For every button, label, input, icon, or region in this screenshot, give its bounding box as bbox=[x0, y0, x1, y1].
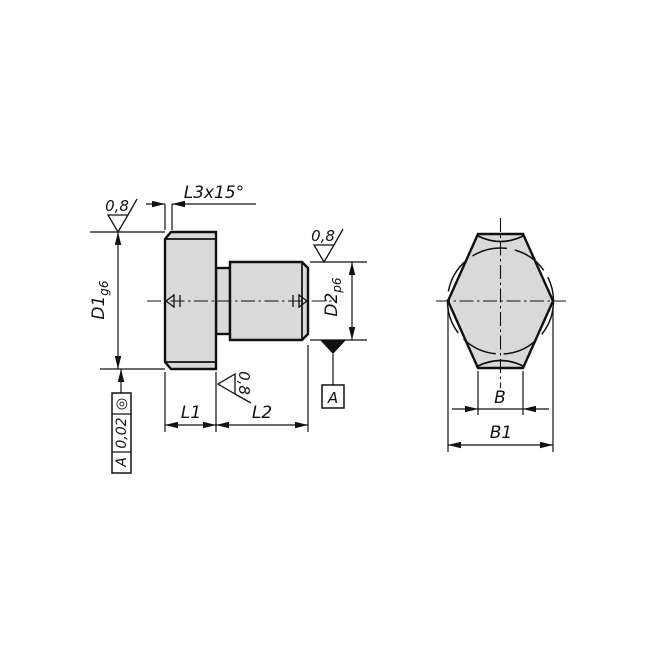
side-view bbox=[147, 232, 332, 369]
roughness-value: 0,8 bbox=[105, 197, 129, 215]
datum-feature-symbol: A bbox=[320, 340, 346, 408]
dim-l2-label: L2 bbox=[252, 403, 272, 423]
screw-drawing: D1g6 L3x15° D2p6 L1 L2 0,8 0,8 bbox=[0, 0, 654, 654]
datum-triangle-icon bbox=[320, 340, 346, 354]
roughness-symbol-head-top: 0,8 bbox=[105, 197, 137, 232]
roughness-symbol-shaft-top: 0,8 bbox=[311, 227, 343, 262]
roughness-symbol-head-face: 0,8 bbox=[218, 371, 253, 403]
dim-l3-label: L3x15° bbox=[184, 183, 244, 203]
tolerance-frame: ◎ 0,02 A bbox=[112, 369, 131, 473]
roughness-value: 0,8 bbox=[235, 371, 253, 395]
dim-b1-label: B1 bbox=[490, 423, 512, 443]
end-view: B B1 bbox=[436, 218, 566, 452]
roughness-value: 0,8 bbox=[311, 227, 335, 245]
concentricity-icon: ◎ bbox=[114, 398, 130, 410]
dim-d2-label: D2p6 bbox=[322, 277, 344, 317]
dim-b-label: B bbox=[494, 388, 506, 408]
tolerance-value: 0,02 bbox=[114, 417, 130, 448]
dim-l1-label: L1 bbox=[181, 403, 201, 423]
technical-drawing-sheet: D1g6 L3x15° D2p6 L1 L2 0,8 0,8 bbox=[0, 0, 654, 654]
tolerance-datum-ref: A bbox=[114, 457, 130, 468]
dim-d1-label: D1g6 bbox=[89, 280, 111, 320]
datum-label: A bbox=[327, 389, 338, 407]
